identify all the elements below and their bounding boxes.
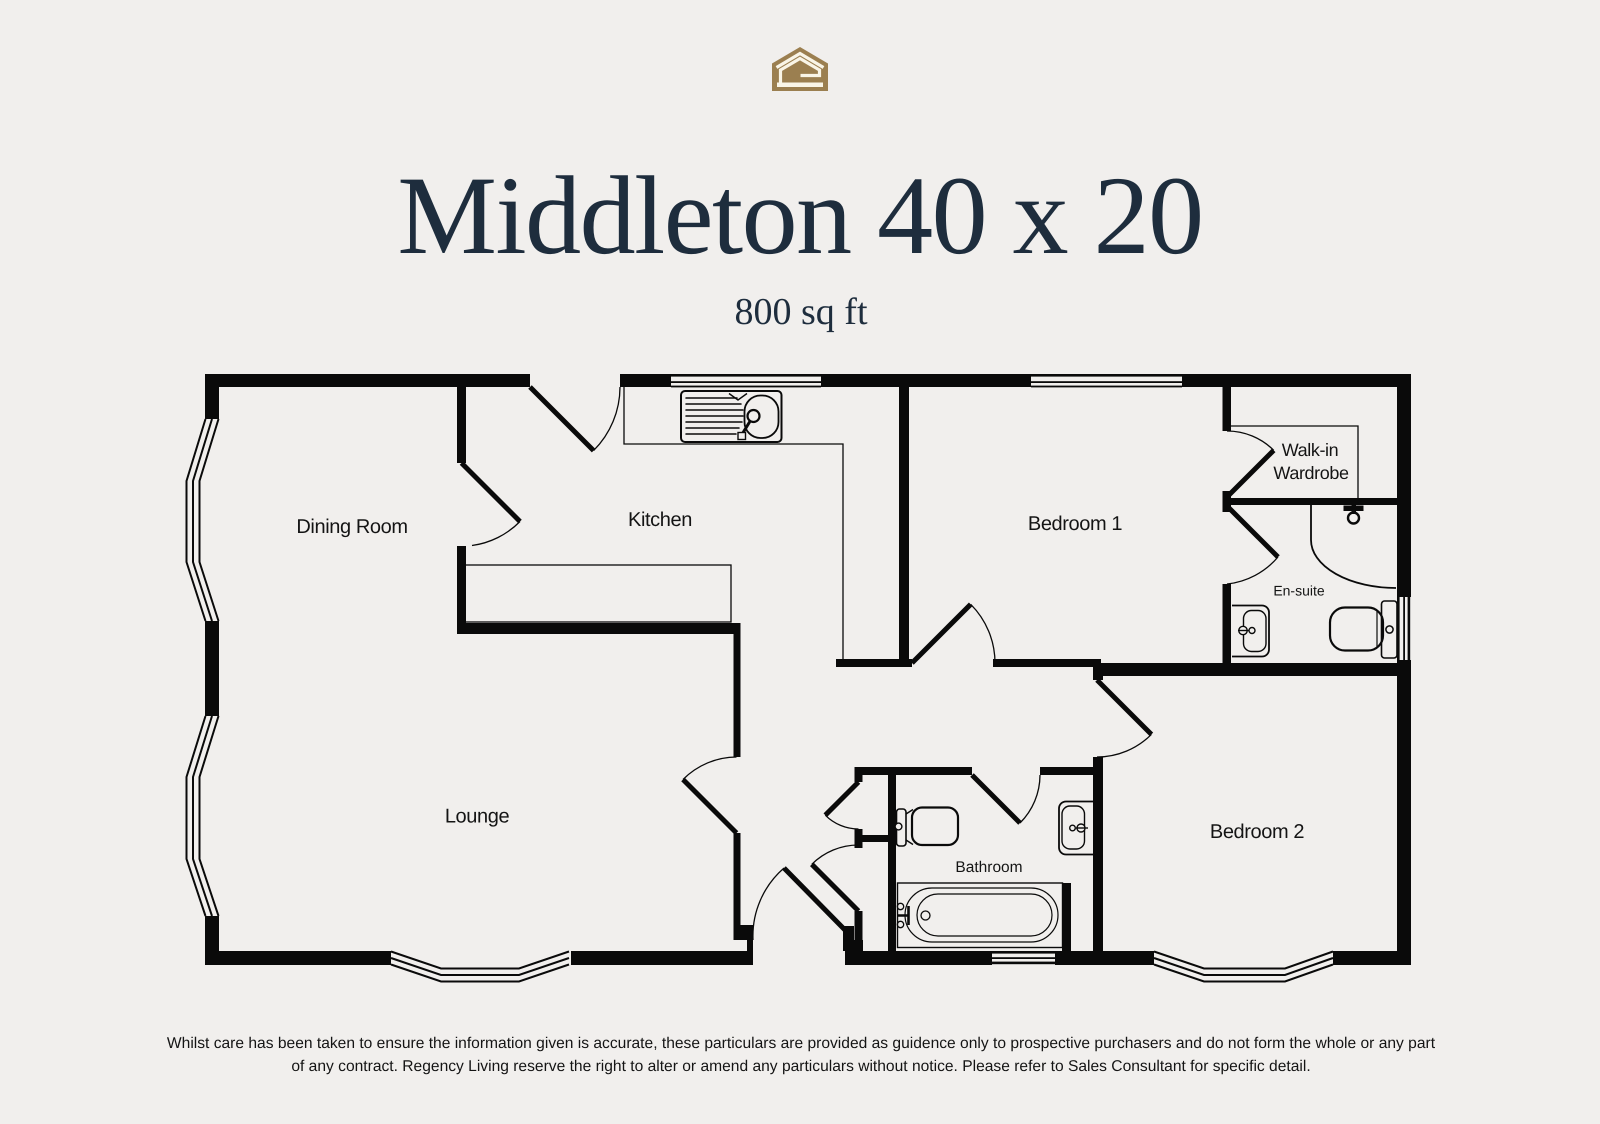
- svg-text:Bedroom 2: Bedroom 2: [1210, 821, 1305, 843]
- svg-text:Lounge: Lounge: [445, 806, 510, 828]
- svg-text:Middleton 40 x 20: Middleton 40 x 20: [397, 154, 1202, 278]
- svg-text:of any contract. Regency Livin: of any contract. Regency Living reserve …: [291, 1058, 1310, 1075]
- svg-text:Bedroom 1: Bedroom 1: [1028, 513, 1123, 535]
- svg-text:Kitchen: Kitchen: [628, 509, 692, 531]
- svg-text:Wardrobe: Wardrobe: [1273, 463, 1349, 483]
- svg-text:Bathroom: Bathroom: [955, 859, 1022, 876]
- svg-text:En-suite: En-suite: [1273, 583, 1325, 599]
- svg-text:Whilst care has been taken to: Whilst care has been taken to ensure the…: [167, 1035, 1436, 1052]
- svg-text:800 sq ft: 800 sq ft: [735, 291, 868, 333]
- svg-text:Dining Room: Dining Room: [296, 516, 407, 538]
- svg-text:Walk-in: Walk-in: [1282, 440, 1339, 460]
